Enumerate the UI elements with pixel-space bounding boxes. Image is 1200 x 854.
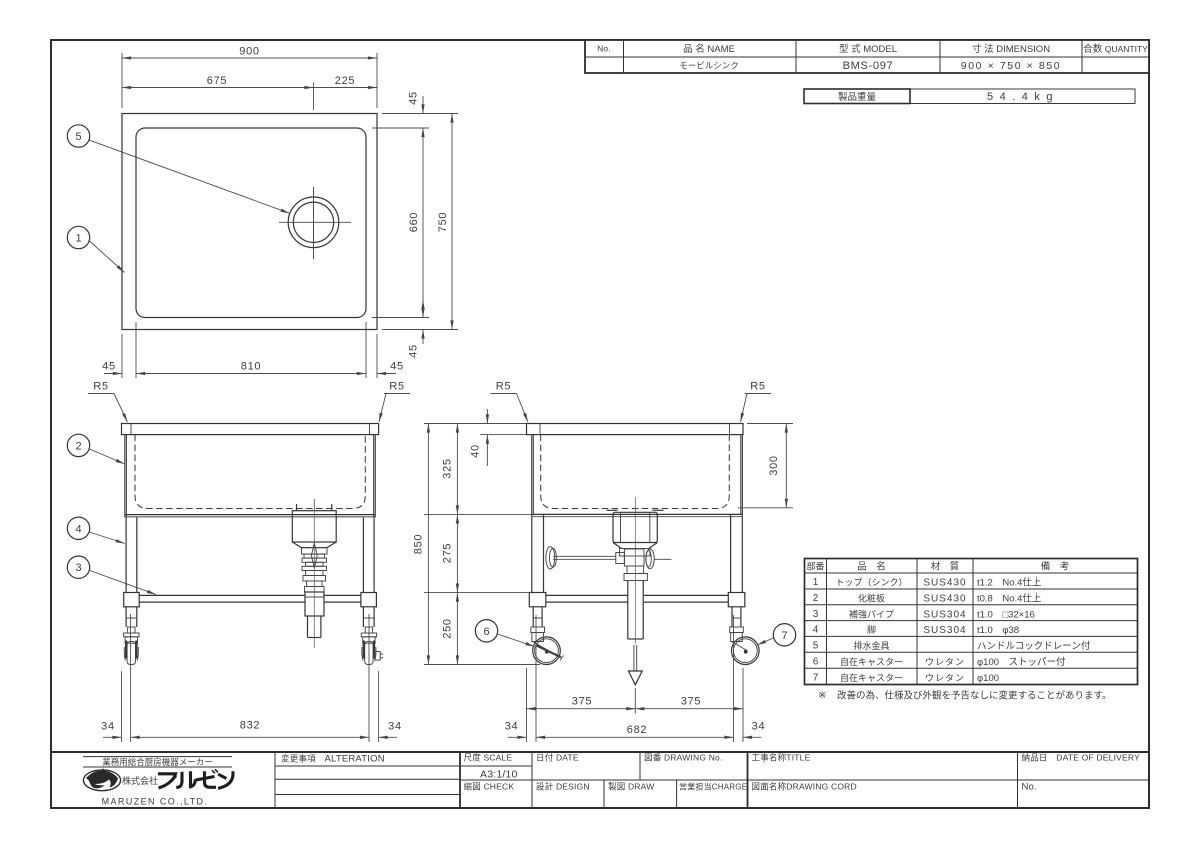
- svg-text:自在キャスター: 自在キャスター: [840, 656, 903, 667]
- svg-text:モービルシンク: モービルシンク: [679, 61, 739, 71]
- svg-text:脚: 脚: [867, 625, 876, 635]
- svg-text:R5: R5: [389, 381, 404, 393]
- svg-text:t1.2 No.4仕上: t1.2 No.4仕上: [977, 577, 1042, 589]
- svg-text:54.4kg: 54.4kg: [987, 91, 1059, 103]
- svg-text:製品重量: 製品重量: [838, 91, 877, 103]
- svg-text:SUS430: SUS430: [923, 594, 966, 605]
- svg-text:225: 225: [335, 75, 355, 87]
- svg-text:φ100: φ100: [977, 673, 999, 684]
- svg-text:図面名称DRAWING CORD: 図面名称DRAWING CORD: [752, 782, 857, 792]
- svg-text:t1.0 □32×16: t1.0 □32×16: [977, 609, 1035, 620]
- svg-text:ハンドルコックドレーン付: ハンドルコックドレーン付: [977, 641, 1091, 652]
- svg-text:300: 300: [768, 455, 780, 475]
- svg-text:750: 750: [437, 212, 449, 232]
- svg-text:合数 QUANTITY: 合数 QUANTITY: [1083, 43, 1148, 55]
- svg-text:375: 375: [681, 696, 701, 708]
- svg-text:日付 DATE: 日付 DATE: [536, 753, 579, 763]
- svg-text:1: 1: [813, 577, 819, 588]
- svg-text:7: 7: [781, 630, 787, 642]
- svg-text:900 × 750 × 850: 900 × 750 × 850: [961, 60, 1062, 72]
- svg-text:ウレタン: ウレタン: [925, 657, 965, 667]
- svg-text:株式会社: 株式会社: [122, 775, 158, 786]
- svg-text:R5: R5: [93, 381, 108, 393]
- svg-text:45: 45: [390, 361, 404, 373]
- svg-text:製図 DRAW: 製図 DRAW: [608, 782, 654, 792]
- svg-text:品 名 NAME: 品 名 NAME: [683, 43, 735, 55]
- svg-text:34: 34: [101, 721, 115, 733]
- svg-text:34: 34: [752, 721, 766, 733]
- svg-text:t1.0 φ38: t1.0 φ38: [977, 625, 1019, 636]
- svg-text:φ100 ストッパー付: φ100 ストッパー付: [977, 657, 1066, 668]
- svg-text:325: 325: [441, 458, 453, 478]
- svg-text:40: 40: [470, 444, 482, 458]
- svg-text:5: 5: [813, 640, 819, 651]
- svg-text:832: 832: [240, 720, 260, 732]
- svg-text:34: 34: [388, 721, 402, 733]
- svg-text:4: 4: [75, 523, 81, 535]
- svg-text:設計 DESIGN: 設計 DESIGN: [536, 782, 590, 792]
- svg-text:2: 2: [813, 593, 819, 604]
- svg-text:縮図 CHECK: 縮図 CHECK: [464, 782, 515, 792]
- svg-text:化粧板: 化粧板: [858, 593, 885, 604]
- svg-text:34: 34: [505, 721, 519, 733]
- svg-text:自在キャスター: 自在キャスター: [840, 672, 903, 683]
- svg-text:ウレタン: ウレタン: [925, 673, 965, 683]
- svg-text:SUS304: SUS304: [923, 609, 966, 620]
- svg-text:2: 2: [75, 440, 81, 452]
- svg-text:営業担当CHARGE: 営業担当CHARGE: [679, 782, 747, 792]
- svg-text:排水金具: 排水金具: [853, 640, 889, 651]
- svg-text:BMS-097: BMS-097: [843, 60, 894, 72]
- svg-text:改善の為、仕様及び外観を予告なしに変更することがあります。: 改善の為、仕様及び外観を予告なしに変更することがあります。: [837, 690, 1112, 702]
- svg-text:45: 45: [102, 361, 116, 373]
- svg-text:6: 6: [483, 626, 489, 638]
- svg-text:納品日 DATE OF DELIVERY: 納品日 DATE OF DELIVERY: [1022, 753, 1141, 763]
- svg-text:7: 7: [813, 672, 819, 683]
- svg-text:R5: R5: [496, 381, 511, 393]
- svg-text:型 式 MODEL: 型 式 MODEL: [839, 43, 897, 55]
- svg-text:375: 375: [572, 696, 592, 708]
- svg-text:6: 6: [813, 656, 819, 667]
- svg-text:部番: 部番: [806, 561, 824, 572]
- svg-text:682: 682: [627, 724, 647, 736]
- svg-text:5: 5: [75, 131, 81, 143]
- svg-text:MARUZEN CO.,LTD.: MARUZEN CO.,LTD.: [102, 797, 209, 807]
- svg-text:45: 45: [408, 91, 420, 105]
- svg-text:※: ※: [818, 691, 826, 702]
- svg-text:t0.8 No.4仕上: t0.8 No.4仕上: [977, 593, 1042, 605]
- svg-text:No.: No.: [597, 44, 611, 54]
- svg-text:変更事項 ALTERATION: 変更事項 ALTERATION: [281, 754, 385, 765]
- svg-text:810: 810: [241, 361, 261, 373]
- svg-text:275: 275: [441, 543, 453, 563]
- svg-text:250: 250: [441, 618, 453, 638]
- svg-text:A3:1/10: A3:1/10: [480, 769, 518, 781]
- svg-text:品 名: 品 名: [857, 561, 886, 573]
- svg-text:トップ（シンク）: トップ（シンク）: [835, 578, 907, 588]
- svg-text:900: 900: [239, 46, 259, 58]
- svg-text:3: 3: [813, 609, 819, 620]
- svg-text:SUS430: SUS430: [923, 578, 966, 589]
- svg-text:工事名称TITLE: 工事名称TITLE: [752, 753, 811, 763]
- svg-text:寸 法 DIMENSION: 寸 法 DIMENSION: [972, 43, 1050, 55]
- svg-text:1: 1: [75, 233, 81, 245]
- svg-text:補強パイプ: 補強パイプ: [849, 608, 894, 619]
- svg-text:3: 3: [75, 562, 81, 574]
- svg-text:尺度 SCALE: 尺度 SCALE: [464, 753, 513, 763]
- svg-text:業務用総合厨房機器メーカー: 業務用総合厨房機器メーカー: [102, 757, 213, 767]
- svg-text:R5: R5: [750, 381, 765, 393]
- svg-text:材 質: 材 質: [931, 561, 960, 573]
- svg-text:850: 850: [413, 534, 425, 554]
- svg-text:SUS304: SUS304: [923, 625, 966, 636]
- svg-text:675: 675: [207, 75, 227, 87]
- svg-text:45: 45: [408, 344, 420, 358]
- svg-text:4: 4: [813, 625, 819, 636]
- svg-text:図番 DRAWING No.: 図番 DRAWING No.: [644, 753, 723, 763]
- svg-text:備 考: 備 考: [1041, 561, 1070, 573]
- svg-text:No.: No.: [1022, 782, 1037, 793]
- svg-text:660: 660: [408, 212, 420, 232]
